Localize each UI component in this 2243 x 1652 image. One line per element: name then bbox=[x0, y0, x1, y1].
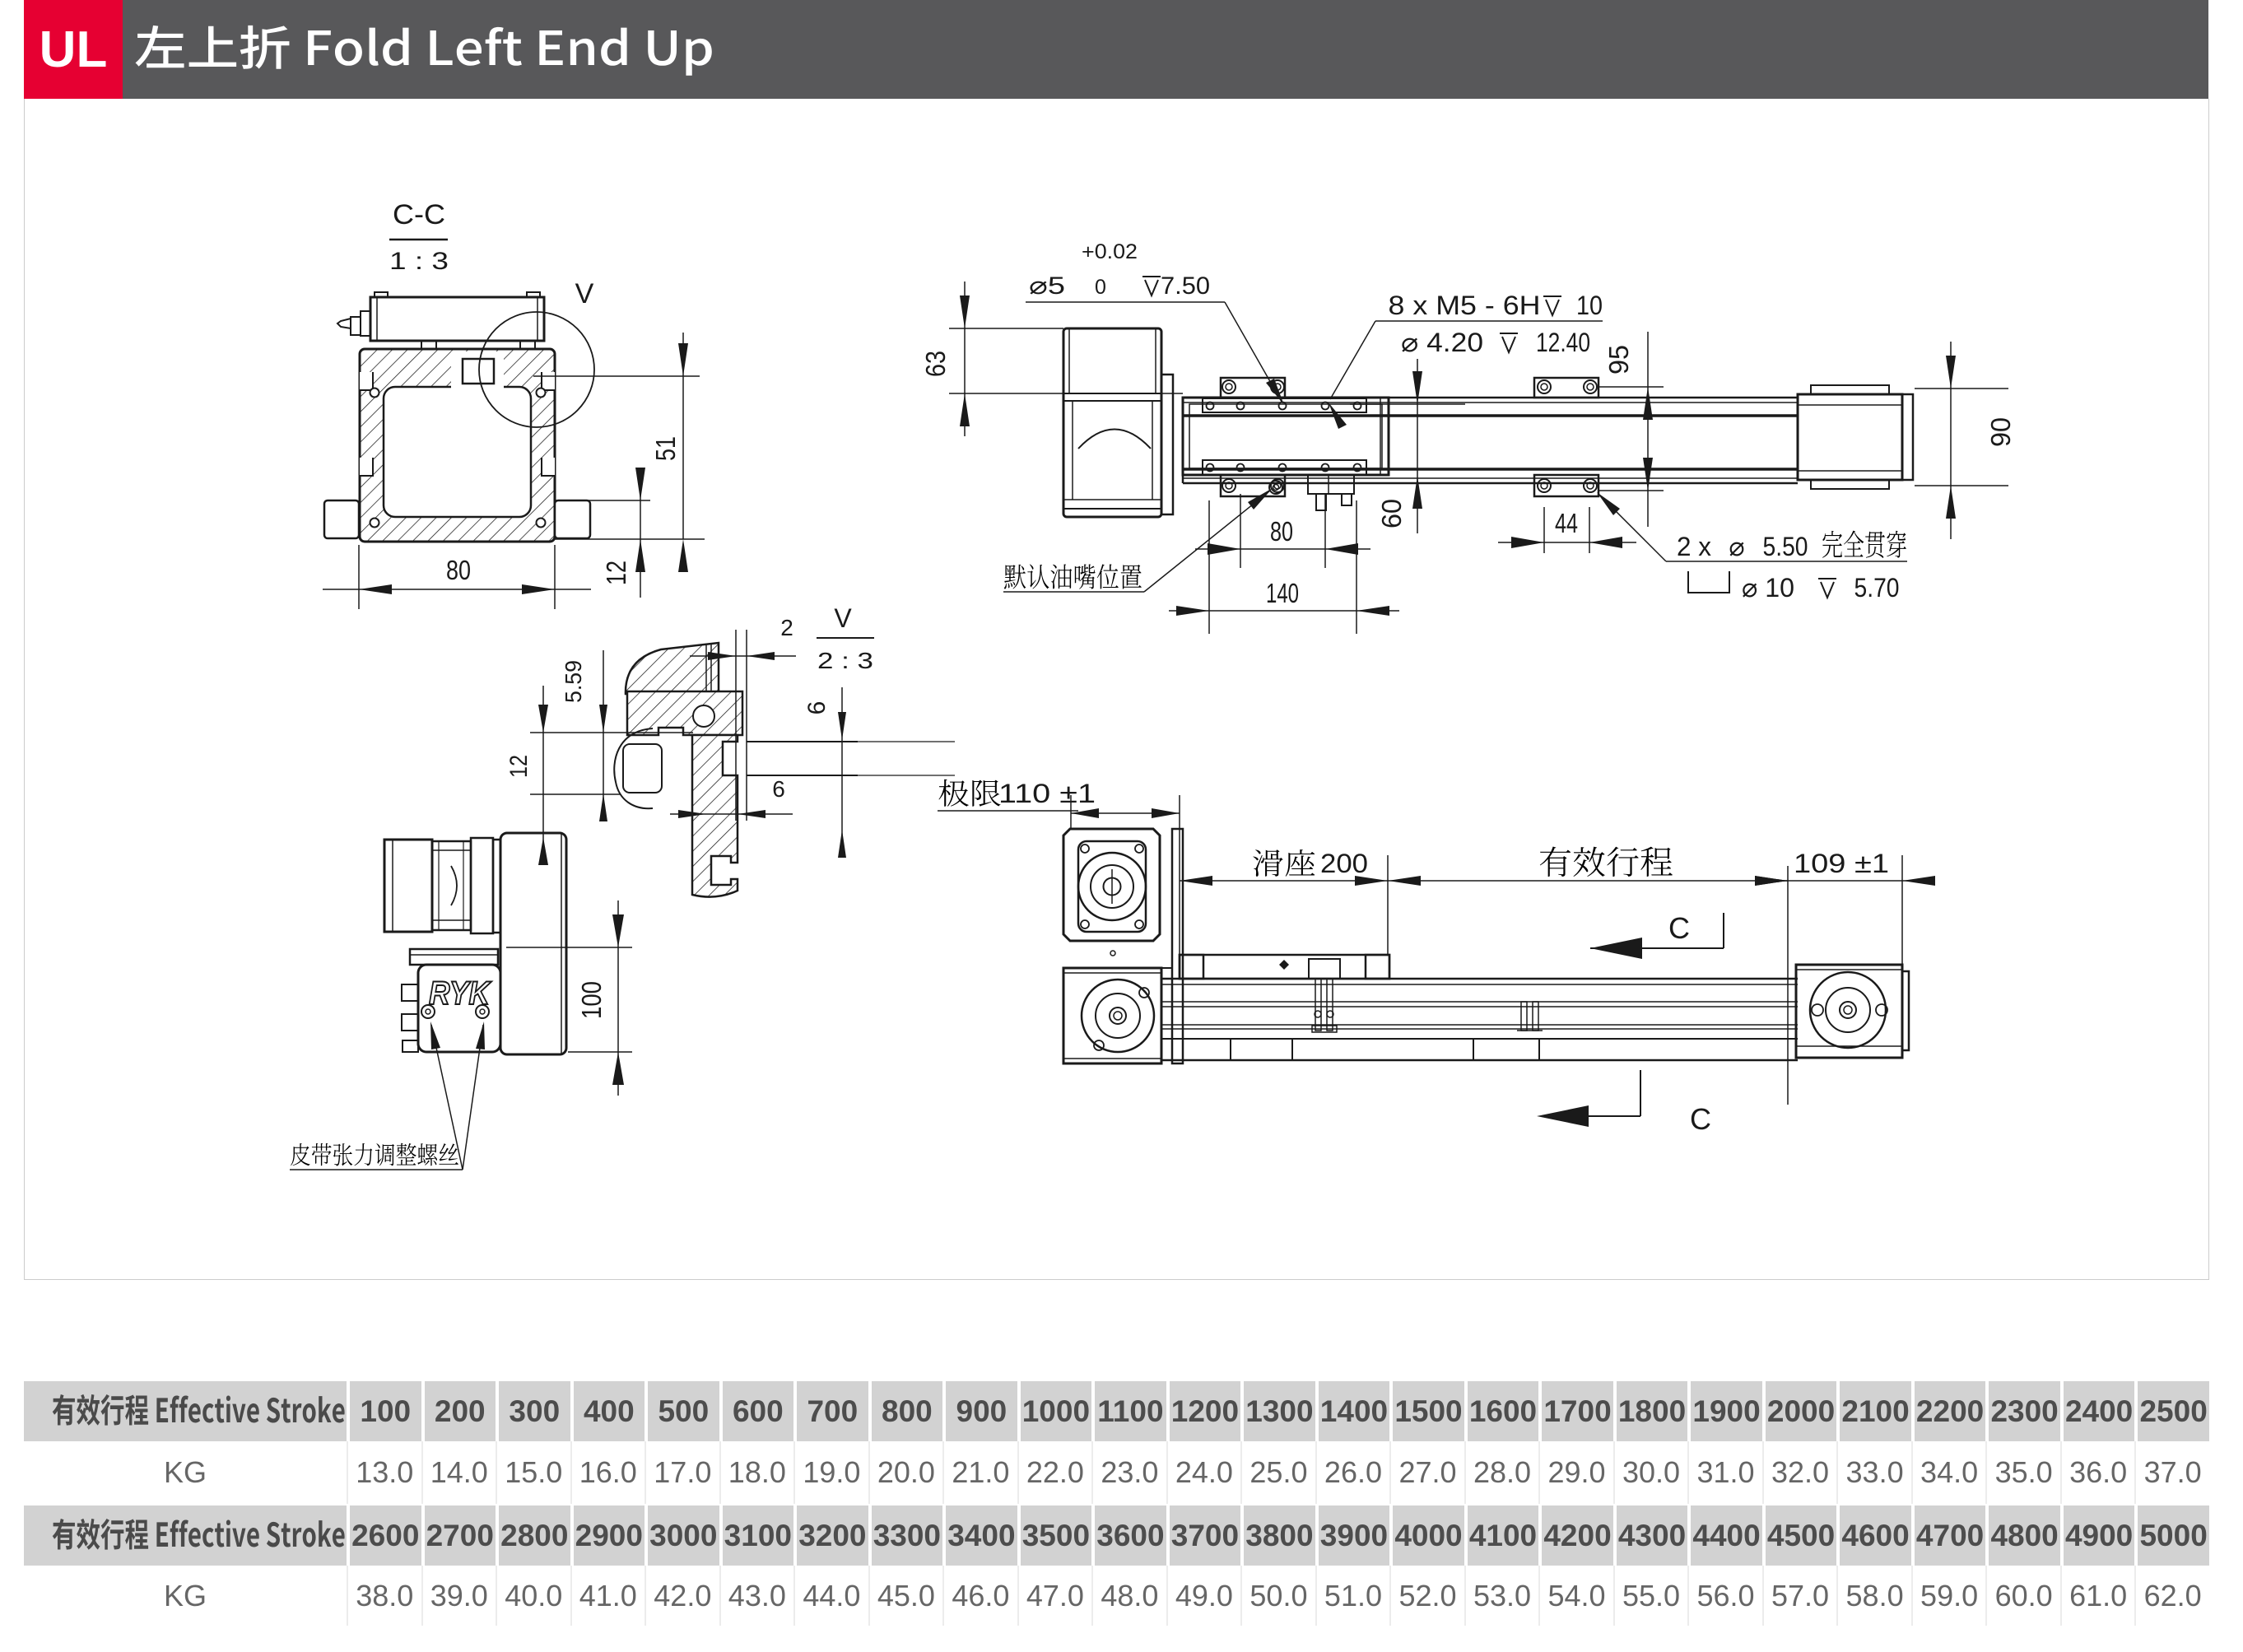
svg-text:6: 6 bbox=[803, 701, 831, 715]
svg-text:C-C: C-C bbox=[393, 199, 445, 230]
svg-text:12: 12 bbox=[505, 755, 533, 778]
svg-text:5.70: 5.70 bbox=[1854, 573, 1900, 603]
svg-text:109 ±1: 109 ±1 bbox=[1794, 849, 1889, 878]
svg-text:6: 6 bbox=[772, 776, 785, 802]
svg-text:1 : 3: 1 : 3 bbox=[389, 248, 449, 275]
svg-text:0: 0 bbox=[1095, 276, 1106, 299]
svg-text:V: V bbox=[575, 278, 594, 309]
svg-text:95: 95 bbox=[1603, 345, 1634, 375]
svg-text:5.59: 5.59 bbox=[561, 660, 586, 703]
svg-text:7.50: 7.50 bbox=[1161, 272, 1210, 300]
svg-text:⌀ 10: ⌀ 10 bbox=[1742, 573, 1794, 603]
svg-text:2 x: 2 x bbox=[1677, 532, 1711, 561]
svg-text:110 ±1: 110 ±1 bbox=[998, 779, 1096, 808]
svg-text:RYK: RYK bbox=[429, 975, 492, 1012]
svg-text:60: 60 bbox=[1376, 499, 1407, 528]
svg-text:⌀ 4.20: ⌀ 4.20 bbox=[1401, 328, 1483, 357]
svg-text:80: 80 bbox=[1270, 516, 1293, 547]
svg-text:44: 44 bbox=[1555, 508, 1578, 538]
svg-text:63: 63 bbox=[920, 351, 951, 377]
svg-text:C: C bbox=[1690, 1102, 1711, 1136]
svg-text:51: 51 bbox=[650, 436, 681, 461]
svg-text:2: 2 bbox=[780, 615, 793, 640]
svg-text:+0.02: +0.02 bbox=[1082, 240, 1138, 263]
svg-text:V: V bbox=[834, 603, 852, 633]
svg-text:10: 10 bbox=[1576, 291, 1603, 320]
svg-text:5.50: 5.50 bbox=[1763, 532, 1808, 561]
svg-text:12.40: 12.40 bbox=[1536, 328, 1590, 357]
svg-text:90: 90 bbox=[1985, 417, 2016, 447]
svg-text:8 x M5 - 6H: 8 x M5 - 6H bbox=[1389, 291, 1541, 320]
svg-text:200: 200 bbox=[1320, 849, 1368, 878]
svg-text:⌀: ⌀ bbox=[1729, 532, 1744, 561]
svg-text:100: 100 bbox=[576, 981, 607, 1019]
svg-text:12: 12 bbox=[601, 561, 631, 585]
svg-text:2 : 3: 2 : 3 bbox=[817, 648, 873, 673]
svg-text:⌀5: ⌀5 bbox=[1029, 272, 1065, 300]
svg-text:80: 80 bbox=[446, 555, 471, 585]
svg-text:C: C bbox=[1668, 911, 1690, 945]
svg-text:140: 140 bbox=[1266, 578, 1299, 608]
